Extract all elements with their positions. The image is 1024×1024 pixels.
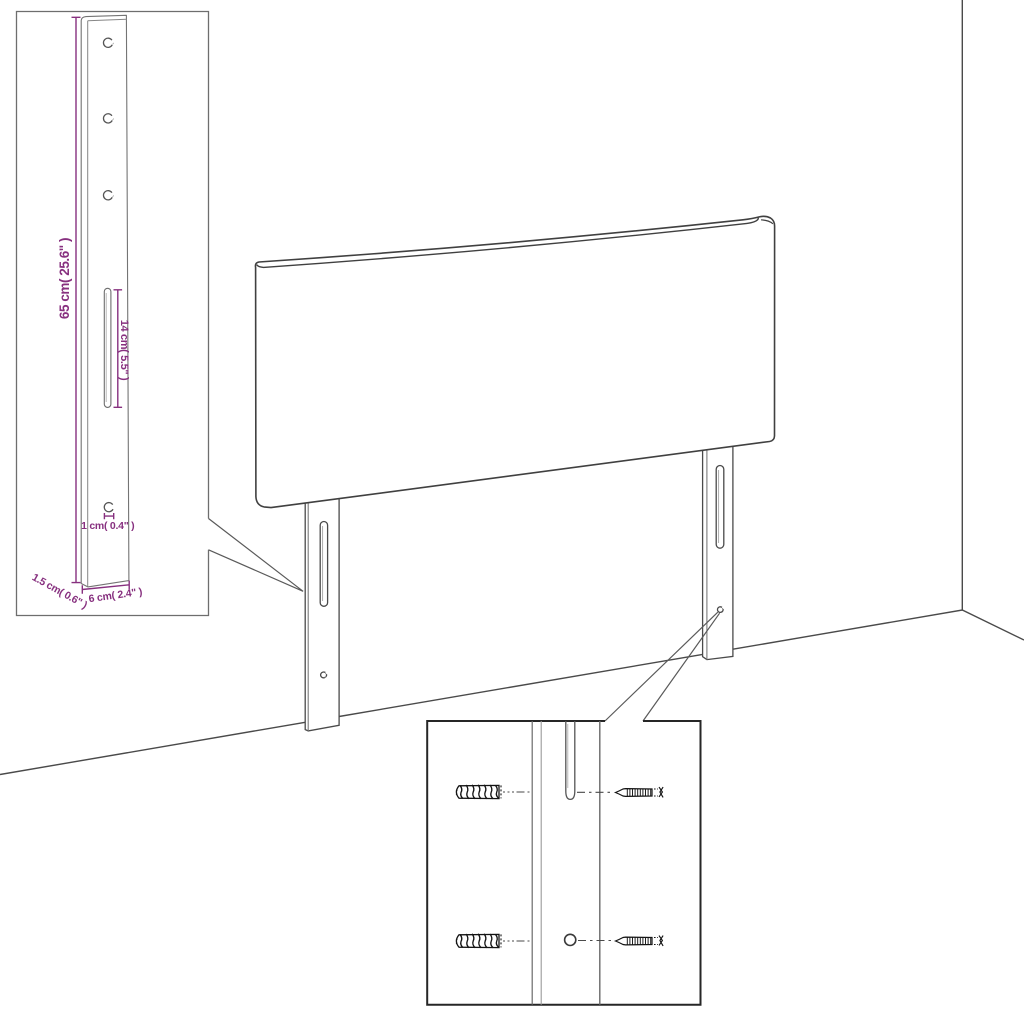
svg-text:1 cm( 0.4" ): 1 cm( 0.4" )	[81, 520, 134, 532]
svg-text:65 cm( 25.6" ): 65 cm( 25.6" )	[57, 238, 72, 319]
svg-text:1.5 cm( 0.6" ): 1.5 cm( 0.6" )	[30, 571, 89, 611]
svg-text:14 cm( 5.5" ): 14 cm( 5.5" )	[118, 320, 130, 381]
